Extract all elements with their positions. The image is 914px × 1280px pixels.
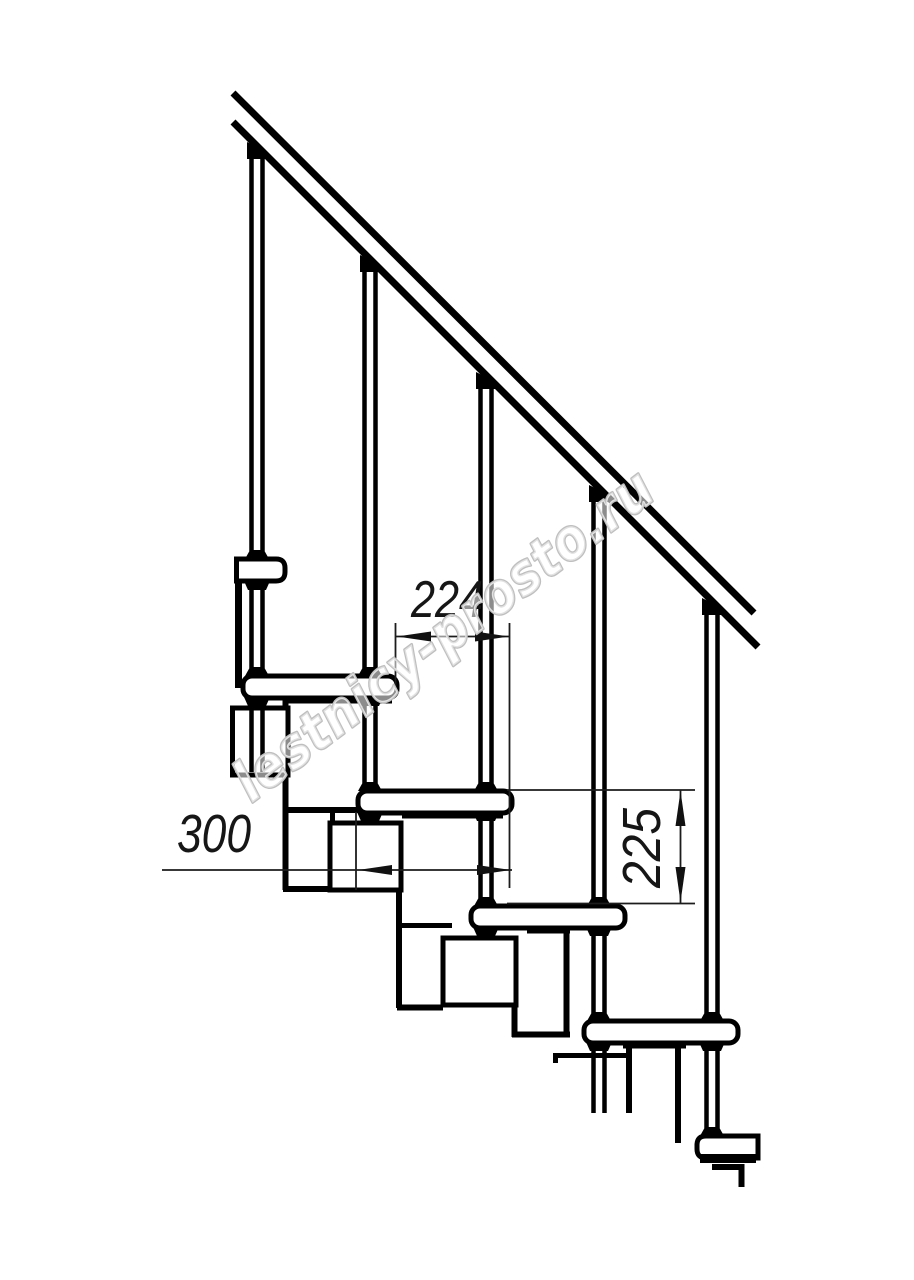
module-box-3 [330,823,401,890]
bolt-b3 [481,812,492,898]
dim-text-300: 300 [177,804,251,864]
foot [245,667,269,676]
nut [244,697,270,706]
foot [700,1012,724,1021]
foot [245,550,269,559]
tread-1-partial [237,559,286,581]
foot [474,897,498,906]
mount-strip-5 [623,1041,686,1049]
tread-3 [358,791,512,813]
nut [586,1042,612,1051]
tread-5 [584,1021,738,1043]
arrow-225-up [676,791,686,826]
foot [358,782,382,791]
bolt-b5 [707,1042,718,1128]
nut [473,812,499,821]
arrow-300-right [477,865,511,875]
mount-strip-4 [527,926,570,934]
foot [587,1012,611,1021]
nut [586,927,612,936]
foot [474,782,498,791]
watermark: lestnicy-prosto.ru [221,456,667,815]
nut [357,812,383,821]
baluster-1 [252,153,263,551]
dim-text-225: 225 [612,807,672,889]
nut [699,1042,725,1051]
foot [587,897,611,906]
drawing-canvas: 224 300 225 lestnicy-prosto.ru [0,0,914,1280]
mount-strip-6 [700,1154,756,1163]
baluster-5 [707,610,718,1013]
foot [700,1127,724,1136]
bottom-bracket [712,1164,744,1187]
arrow-225-down [676,867,686,902]
nut [473,927,499,936]
tread-4 [471,906,625,928]
module-box-5-partial [553,1053,629,1113]
staircase-technical-drawing: 224 300 225 lestnicy-prosto.ru [0,0,914,1280]
baluster-2 [365,267,376,668]
nut [244,581,270,590]
module-box-4 [443,938,516,1005]
